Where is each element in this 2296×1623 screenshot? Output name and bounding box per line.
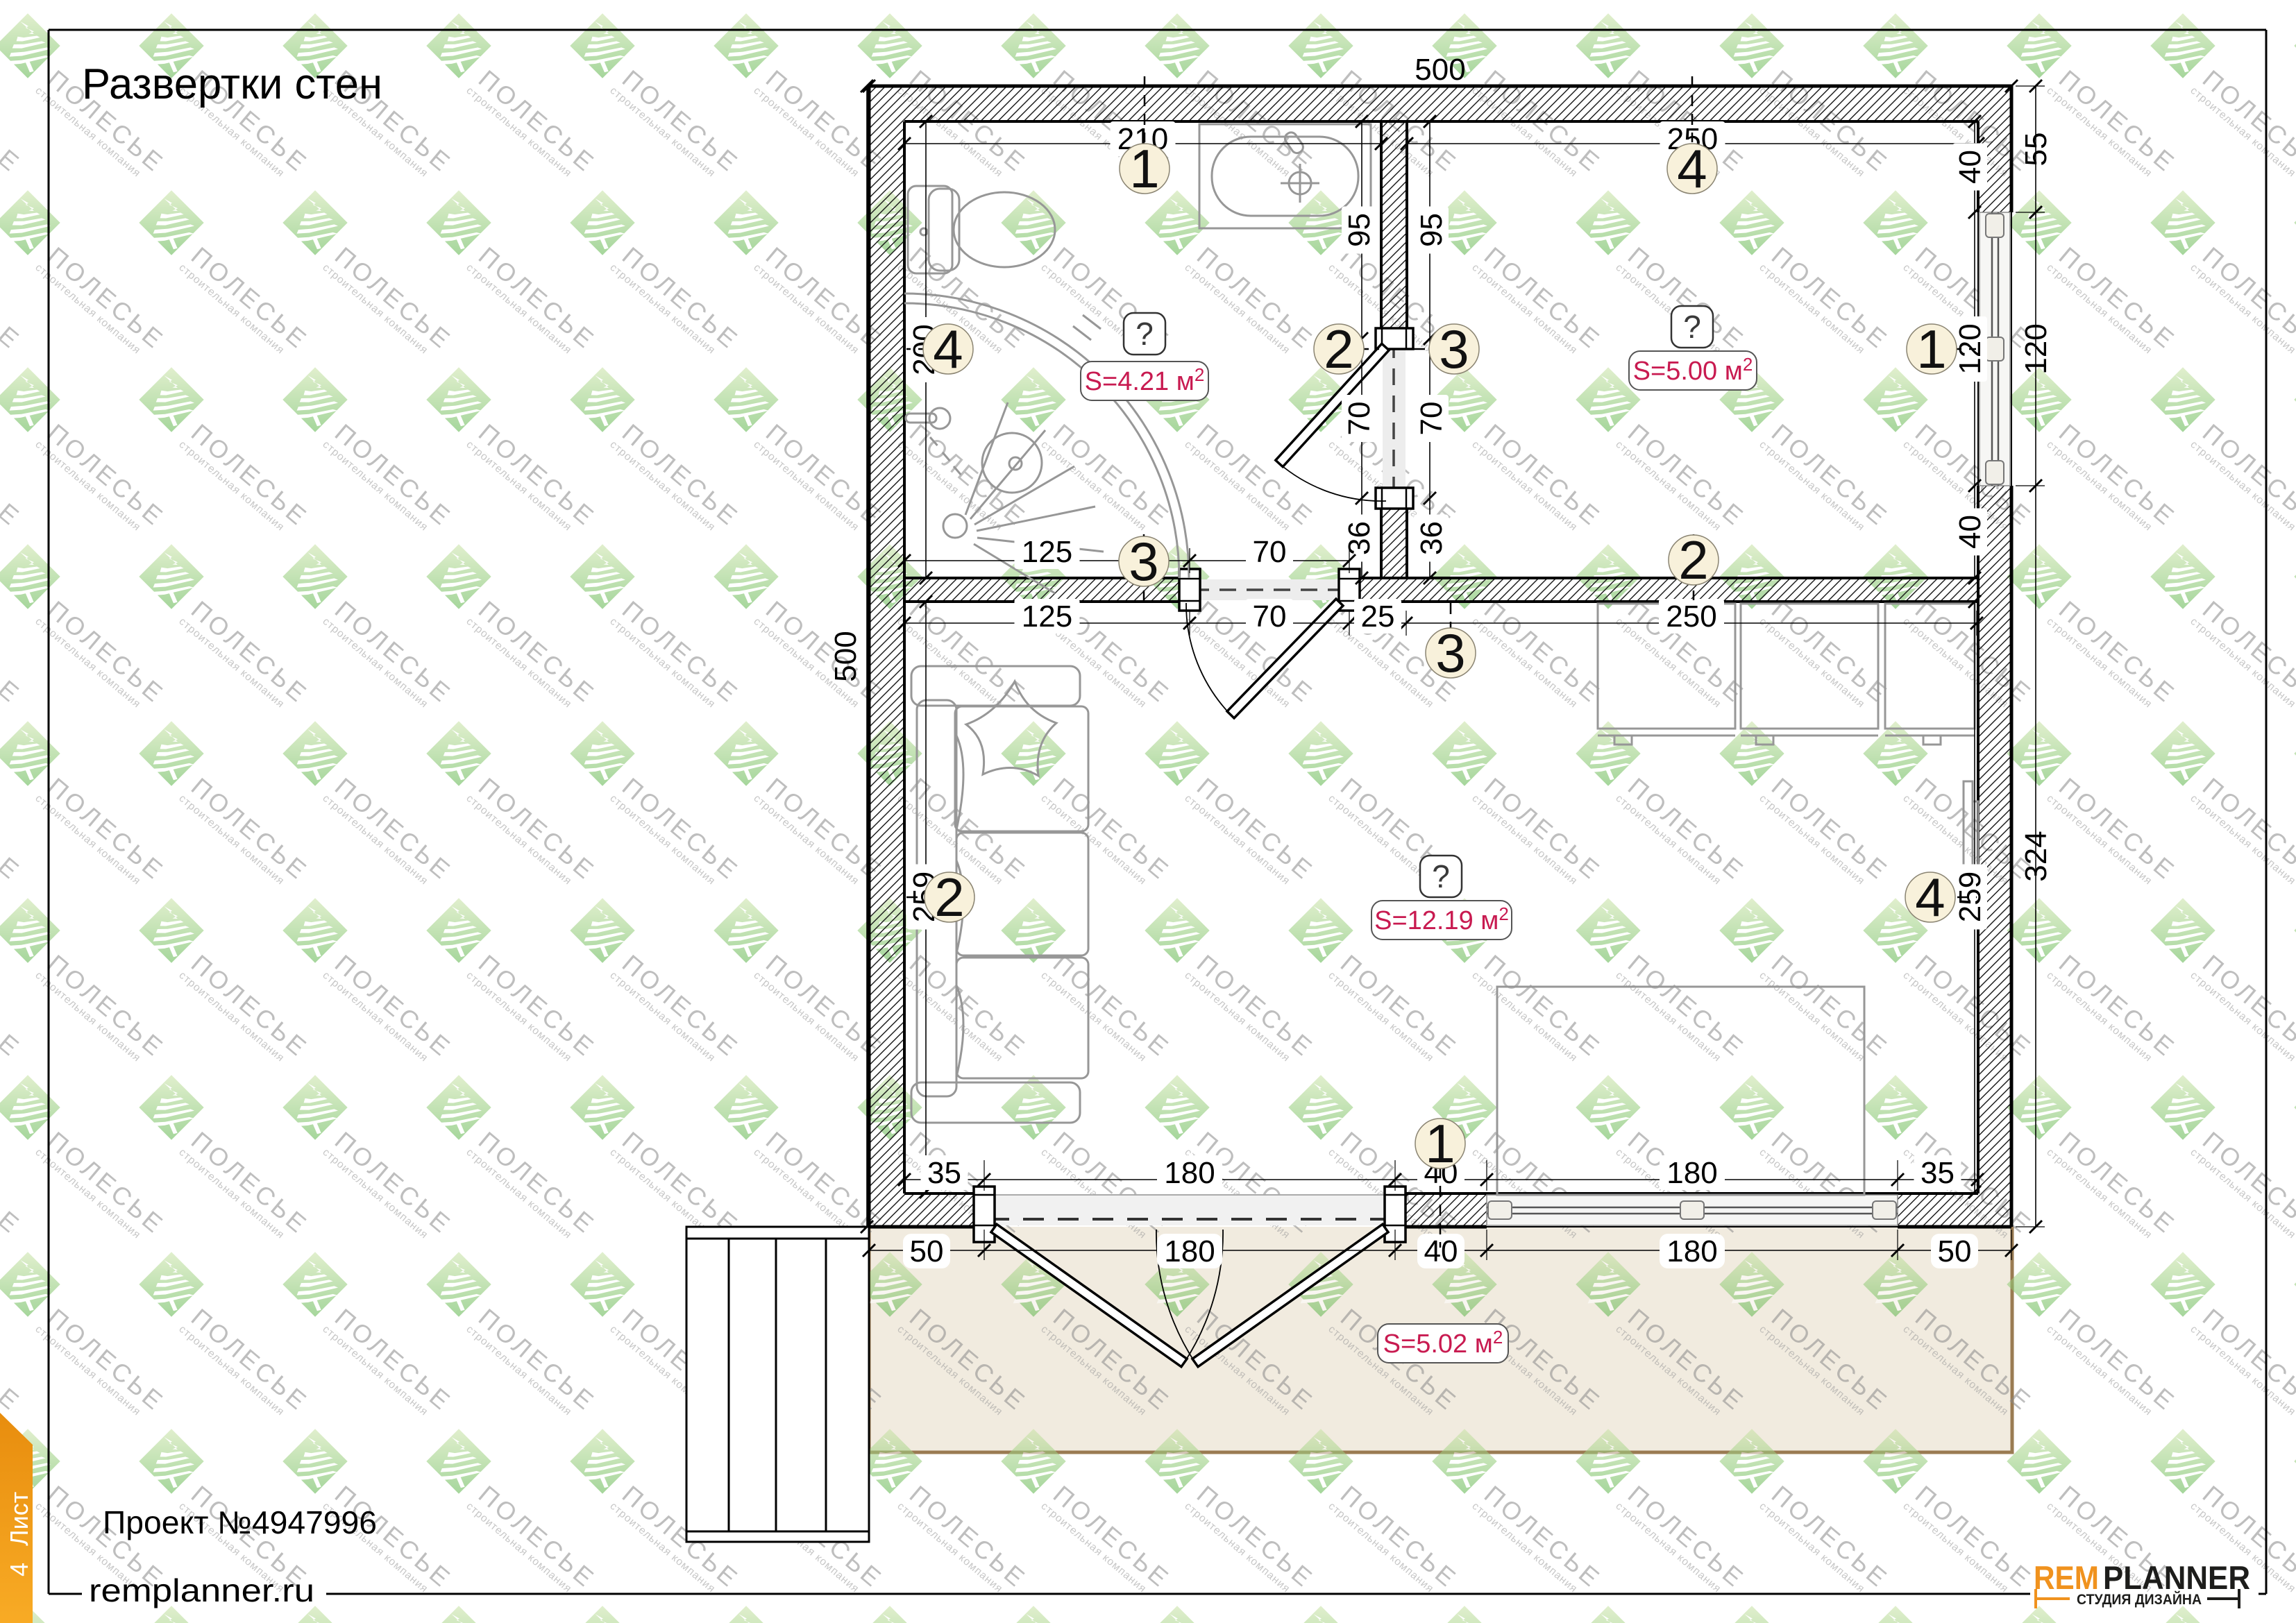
- svg-text:55: 55: [2019, 133, 2053, 167]
- svg-text:250: 250: [1666, 600, 1716, 634]
- svg-text:2: 2: [1324, 318, 1353, 380]
- svg-text:4: 4: [5, 1563, 33, 1577]
- svg-text:50: 50: [910, 1234, 944, 1268]
- svg-text:S=5.02 м2: S=5.02 м2: [1383, 1327, 1503, 1359]
- svg-text:500: 500: [1415, 53, 1465, 87]
- svg-text:?: ?: [1432, 858, 1450, 894]
- svg-text:95: 95: [1342, 213, 1376, 247]
- svg-text:S=12.19 м2: S=12.19 м2: [1374, 903, 1509, 935]
- svg-text:4: 4: [1915, 867, 1945, 928]
- svg-text:324: 324: [2019, 831, 2053, 881]
- svg-text:3: 3: [1129, 531, 1158, 592]
- svg-text:4: 4: [1677, 138, 1707, 199]
- svg-text:?: ?: [1136, 316, 1154, 352]
- svg-text:4: 4: [933, 318, 963, 380]
- svg-text:180: 180: [1666, 1234, 1717, 1268]
- svg-text:40: 40: [1953, 150, 1987, 184]
- svg-text:36: 36: [1342, 521, 1376, 555]
- svg-text:1: 1: [1129, 138, 1159, 199]
- svg-text:70: 70: [1253, 600, 1287, 634]
- svg-text:?: ?: [1683, 309, 1701, 345]
- svg-text:3: 3: [1439, 318, 1469, 380]
- svg-text:35: 35: [927, 1156, 961, 1190]
- svg-text:95: 95: [1415, 213, 1449, 247]
- svg-text:Проект №4947996: Проект №4947996: [103, 1504, 377, 1540]
- svg-text:remplanner.ru: remplanner.ru: [89, 1572, 314, 1608]
- svg-text:50: 50: [1938, 1234, 1972, 1268]
- svg-text:70: 70: [1253, 535, 1287, 569]
- svg-text:70: 70: [1415, 402, 1449, 436]
- svg-text:Лист: Лист: [5, 1492, 33, 1546]
- svg-text:500: 500: [829, 631, 863, 681]
- svg-text:36: 36: [1415, 521, 1449, 555]
- svg-text:S=5.00 м2: S=5.00 м2: [1633, 354, 1753, 386]
- svg-text:35: 35: [1921, 1156, 1955, 1190]
- svg-text:180: 180: [1164, 1234, 1215, 1268]
- svg-text:1: 1: [1916, 318, 1946, 380]
- svg-text:3: 3: [1435, 622, 1465, 683]
- svg-text:S=4.21 м2: S=4.21 м2: [1085, 364, 1205, 396]
- svg-text:PLANNER: PLANNER: [2103, 1559, 2250, 1596]
- svg-text:40: 40: [1424, 1234, 1458, 1268]
- svg-text:REM: REM: [2034, 1559, 2099, 1596]
- svg-text:СТУДИЯ ДИЗАЙНА: СТУДИЯ ДИЗАЙНА: [2077, 1591, 2202, 1608]
- svg-text:125: 125: [1022, 600, 1072, 634]
- svg-text:120: 120: [2019, 323, 2053, 374]
- svg-text:25: 25: [1361, 600, 1395, 634]
- svg-text:2: 2: [1678, 529, 1708, 590]
- svg-text:2: 2: [934, 867, 964, 928]
- svg-text:125: 125: [1022, 535, 1072, 569]
- svg-text:70: 70: [1342, 402, 1376, 436]
- svg-text:40: 40: [1953, 515, 1987, 549]
- svg-text:1: 1: [1425, 1113, 1455, 1174]
- svg-text:Развертки стен: Развертки стен: [82, 60, 382, 108]
- svg-text:180: 180: [1666, 1156, 1717, 1190]
- svg-text:180: 180: [1164, 1156, 1215, 1190]
